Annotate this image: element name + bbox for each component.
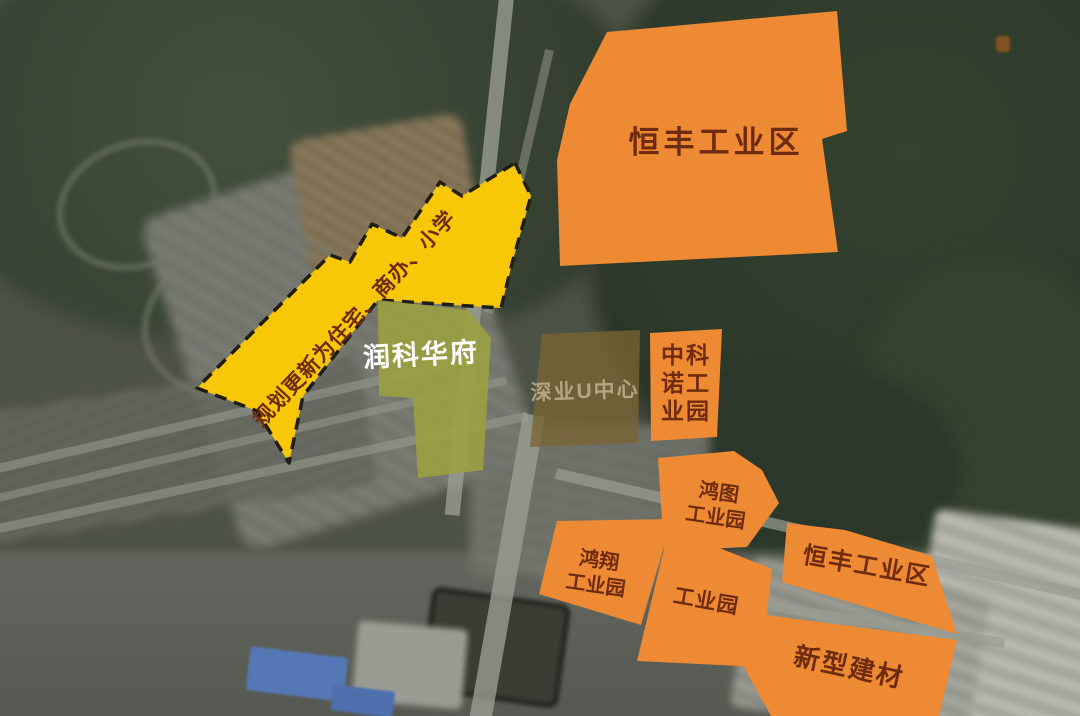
zone-zhongkenuo-label-line3: 业园 (661, 398, 711, 424)
zone-hengfeng-top-label: 恒丰工业区 (629, 125, 804, 160)
satellite-map: 恒丰工业区 规划更新为住宅、商办、小学 润科华府 深业U中心 中科 诺工 业园 … (0, 0, 1080, 716)
zone-overlay: 恒丰工业区 规划更新为住宅、商办、小学 润科华府 深业U中心 中科 诺工 业园 … (0, 0, 1080, 716)
zone-zhongkenuo-label-line1: 中科 (661, 342, 711, 368)
zone-shenye-u-center-label: 深业U中心 (530, 378, 640, 405)
zone-runke-huafu-polygon (378, 300, 491, 478)
zone-zhongkenuo-label-line2: 诺工 (661, 370, 711, 396)
zone-runke-huafu-label: 润科华府 (362, 336, 479, 373)
